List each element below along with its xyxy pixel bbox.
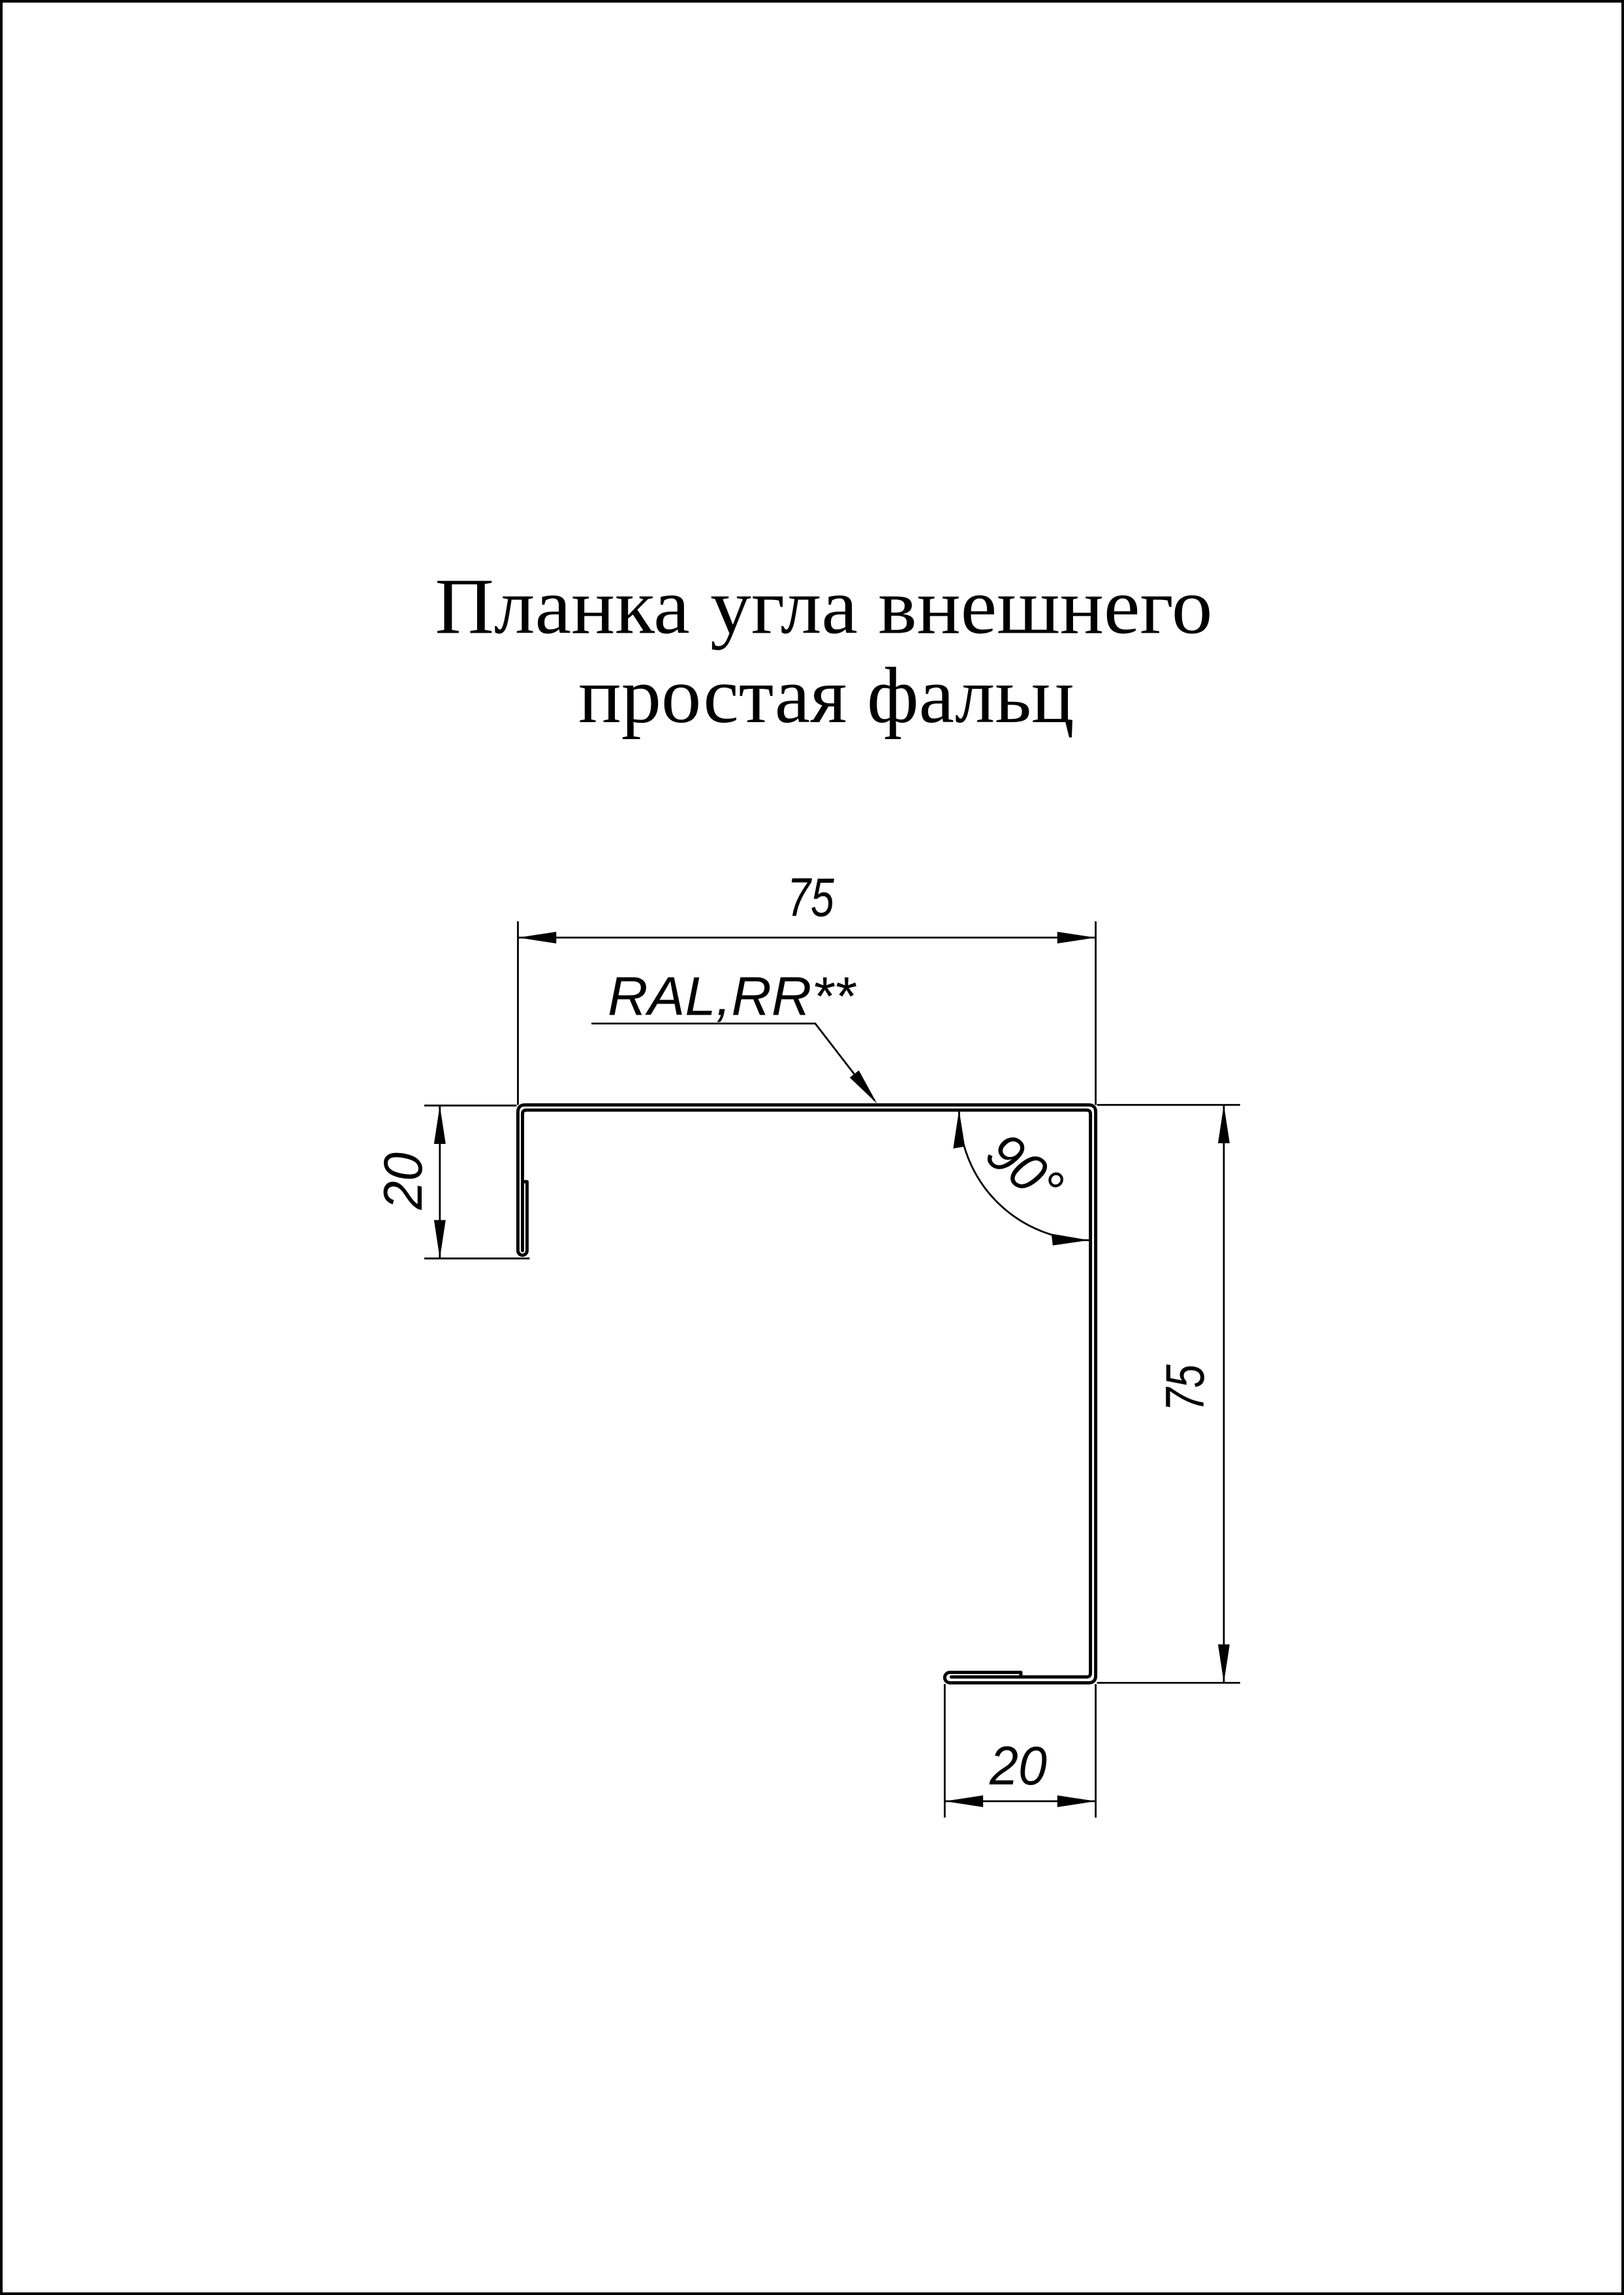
arrowhead-arc-top: [953, 1110, 965, 1148]
extension-lines: [424, 921, 1240, 1818]
dim-label-top-width: 75: [787, 866, 834, 928]
profile-inner-surface-line: [522, 1110, 1090, 1677]
arrowhead-bottom-right: [1057, 1796, 1096, 1807]
dimension-lines: [440, 938, 1224, 1801]
page-title-line2: простая фальц: [578, 652, 1074, 740]
dimension-arrowheads: [434, 932, 1230, 1807]
dim-label-right-height: 75: [1154, 1365, 1215, 1412]
dim-label-left-flange: 20: [372, 1152, 433, 1211]
arrowhead-arc-right: [1052, 1234, 1089, 1246]
arrowhead-left-up: [434, 1105, 446, 1144]
dim-label-bottom-flange: 20: [989, 1735, 1047, 1796]
arrowhead-leader: [850, 1070, 877, 1103]
arrowhead-top-left: [518, 932, 556, 943]
dim-label-angle: 90°: [975, 1120, 1074, 1218]
drawing-sheet: Планка угла внешнего простая фальц: [0, 0, 1624, 2295]
leader-line-material: [591, 1024, 875, 1101]
arrowhead-bottom-left: [945, 1796, 983, 1807]
arrowhead-top-right: [1057, 932, 1096, 943]
material-label: RAL,RR**: [608, 966, 856, 1027]
arrowhead-left-down: [434, 1220, 446, 1259]
page-title-line1: Планка угла внешнего: [435, 563, 1212, 651]
arrowhead-right-up: [1218, 1105, 1230, 1143]
technical-drawing: Планка угла внешнего простая фальц: [3, 3, 1621, 2292]
arrowhead-right-down: [1218, 1645, 1230, 1683]
